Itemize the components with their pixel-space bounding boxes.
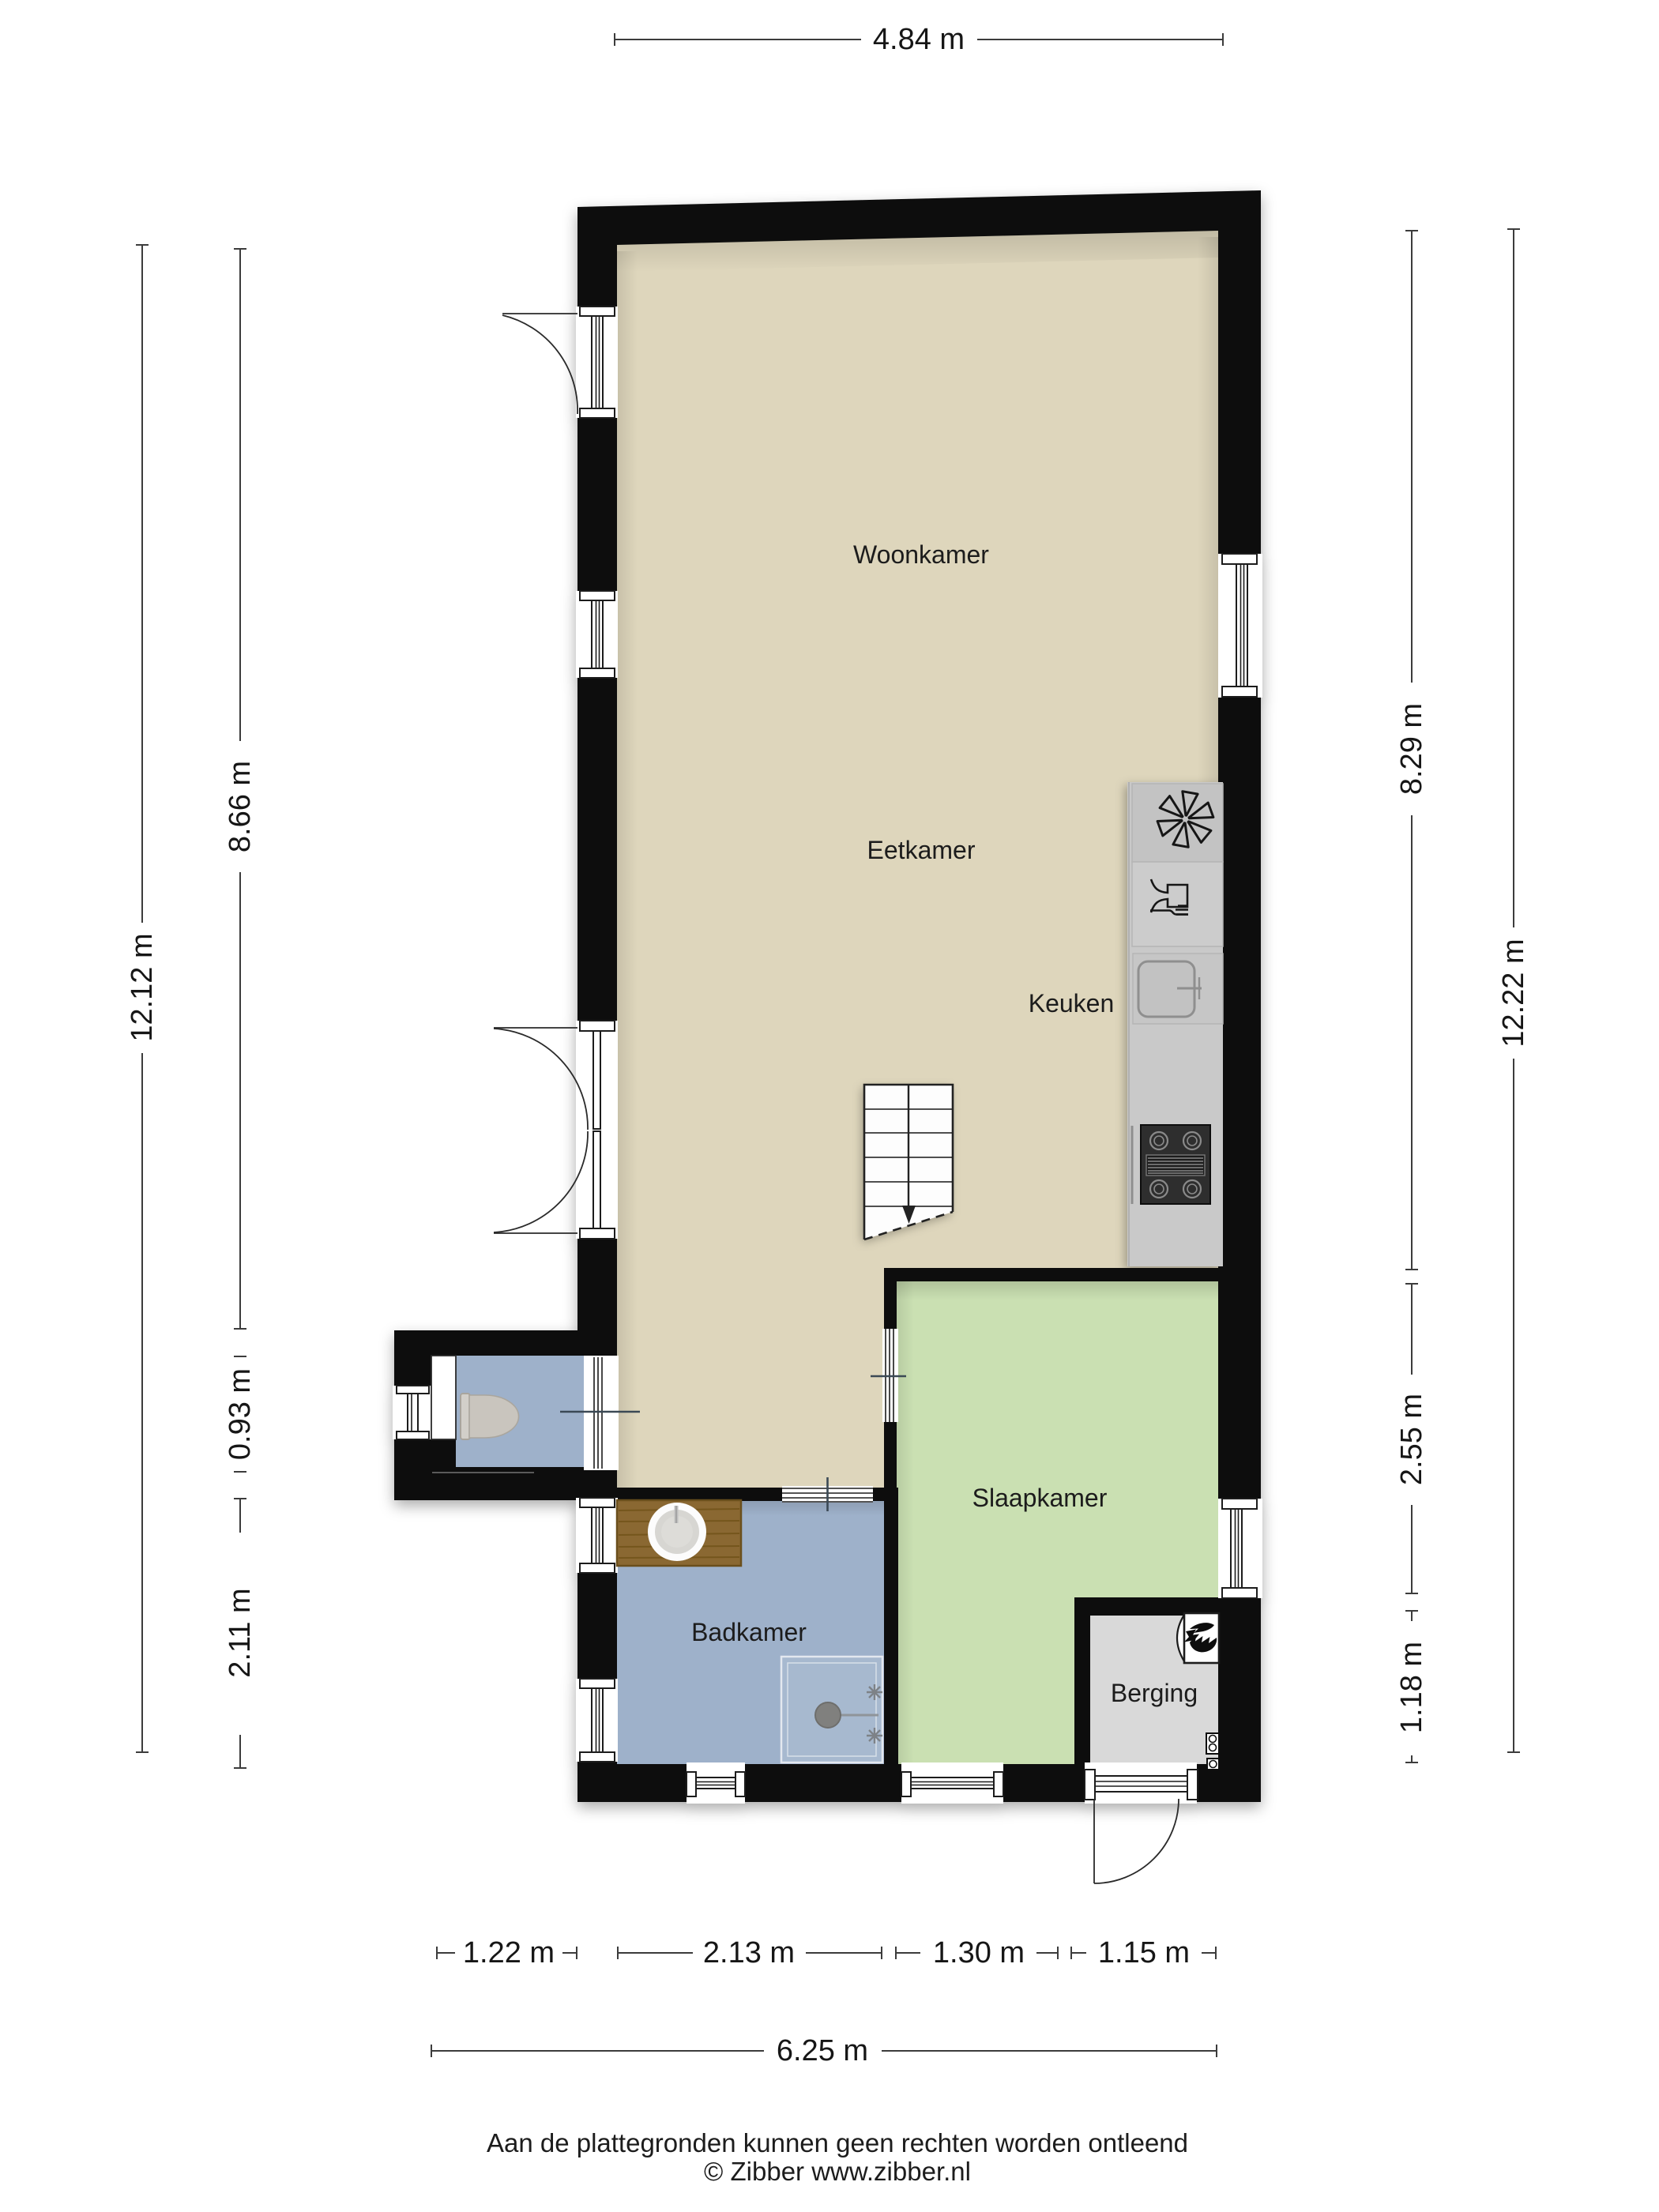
svg-text:0.93 m: 0.93 m: [224, 1368, 257, 1460]
svg-text:Badkamer: Badkamer: [691, 1618, 807, 1646]
svg-text:8.29 m: 8.29 m: [1395, 703, 1428, 795]
svg-text:2.11 m: 2.11 m: [224, 1588, 257, 1677]
svg-text:© Zibber www.zibber.nl: © Zibber www.zibber.nl: [704, 2157, 971, 2186]
svg-text:8.66 m: 8.66 m: [224, 761, 257, 852]
svg-text:Eetkamer: Eetkamer: [867, 836, 976, 864]
svg-text:12.12 m: 12.12 m: [126, 933, 159, 1041]
svg-text:6.25 m: 6.25 m: [777, 2034, 868, 2067]
svg-text:Woonkamer: Woonkamer: [853, 540, 989, 569]
svg-text:Berging: Berging: [1111, 1679, 1198, 1707]
svg-text:2.13 m: 2.13 m: [703, 1936, 795, 1969]
svg-text:1.18 m: 1.18 m: [1395, 1642, 1428, 1733]
svg-text:12.22 m: 12.22 m: [1497, 939, 1530, 1047]
svg-text:2.55 m: 2.55 m: [1395, 1394, 1428, 1485]
svg-text:1.15 m: 1.15 m: [1098, 1936, 1190, 1969]
svg-text:Slaapkamer: Slaapkamer: [972, 1484, 1108, 1512]
svg-text:1.22 m: 1.22 m: [463, 1936, 555, 1969]
svg-text:Keuken: Keuken: [1029, 989, 1115, 1018]
svg-text:1.30 m: 1.30 m: [933, 1936, 1025, 1969]
svg-text:4.84 m: 4.84 m: [873, 23, 965, 56]
svg-text:Aan de plattegronden kunnen ge: Aan de plattegronden kunnen geen rechten…: [487, 2128, 1188, 2157]
